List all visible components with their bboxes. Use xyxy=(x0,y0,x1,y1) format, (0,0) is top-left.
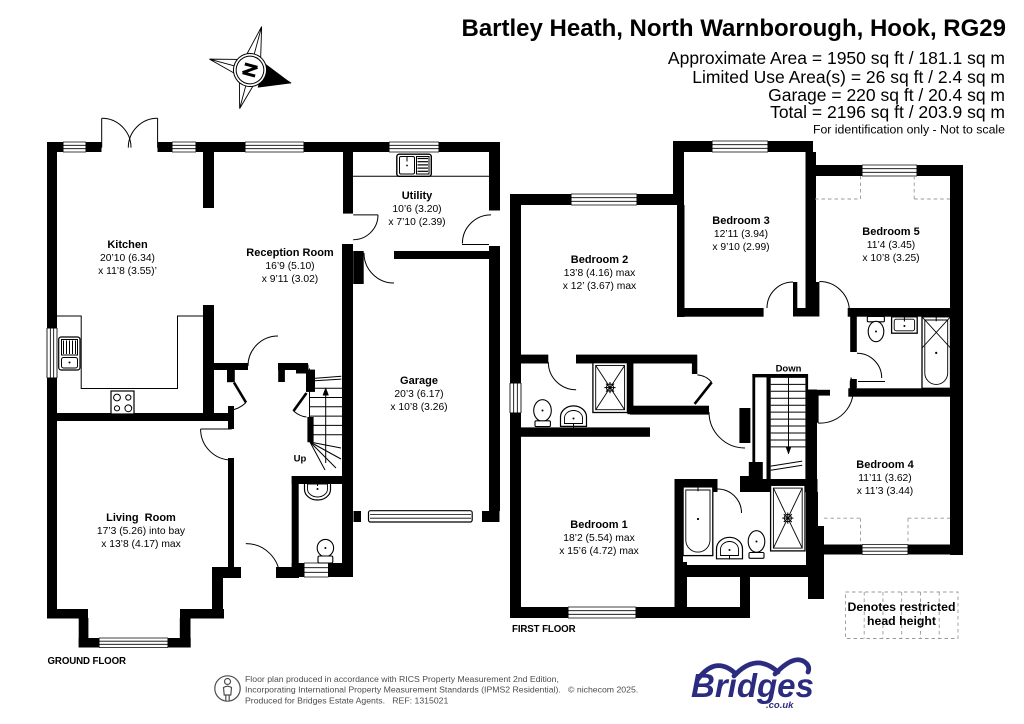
svg-text:x 11’3 (3.44): x 11’3 (3.44) xyxy=(857,486,913,497)
svg-text:Denotes restricted: Denotes restricted xyxy=(848,600,956,614)
svg-text:17’3 (5.26) into bay: 17’3 (5.26) into bay xyxy=(97,526,186,537)
svg-text:Kitchen: Kitchen xyxy=(107,239,148,251)
svg-text:Limited Use Area(s) = 26 sq ft: Limited Use Area(s) = 26 sq ft / 2.4 sq … xyxy=(692,67,1005,87)
svg-text:Reception Room: Reception Room xyxy=(246,247,334,259)
svg-text:Bedroom 5: Bedroom 5 xyxy=(862,226,919,238)
svg-text:Utility: Utility xyxy=(402,190,433,202)
svg-text:11’4 (3.45): 11’4 (3.45) xyxy=(867,240,915,251)
svg-text:.co.uk: .co.uk xyxy=(766,700,794,711)
svg-text:Produced for Bridges Estate Ag: Produced for Bridges Estate Agents. REF:… xyxy=(245,696,448,706)
svg-text:FIRST FLOOR: FIRST FLOOR xyxy=(512,624,576,635)
svg-text:x 7’10 (2.39): x 7’10 (2.39) xyxy=(388,217,445,228)
svg-text:18’2 (5.54) max: 18’2 (5.54) max xyxy=(563,533,635,544)
svg-text:x 10’8 (3.26): x 10’8 (3.26) xyxy=(390,402,447,413)
svg-text:Bedroom 1: Bedroom 1 xyxy=(570,519,627,531)
svg-text:Bedroom 2: Bedroom 2 xyxy=(571,254,628,266)
svg-text:13’8 (4.16) max: 13’8 (4.16) max xyxy=(564,268,636,279)
svg-text:16’9 (5.10): 16’9 (5.10) xyxy=(265,261,314,272)
svg-text:x 9’11 (3.02): x 9’11 (3.02) xyxy=(262,274,318,285)
svg-text:For identification only - Not: For identification only - Not to scale xyxy=(813,123,1005,137)
svg-text:Living Room: Living Room xyxy=(106,512,176,524)
svg-text:x 11’8 (3.55)’: x 11’8 (3.55)’ xyxy=(98,266,157,277)
svg-text:20’10 (6.34): 20’10 (6.34) xyxy=(100,253,155,264)
svg-text:12’11 (3.94): 12’11 (3.94) xyxy=(714,229,768,240)
svg-text:x 13’8 (4.17) max: x 13’8 (4.17) max xyxy=(101,539,181,550)
svg-text:Total = 2196 sq ft / 203.9 sq: Total = 2196 sq ft / 203.9 sq m xyxy=(770,102,1005,122)
svg-text:11’11 (3.62): 11’11 (3.62) xyxy=(858,473,911,484)
svg-text:x 10’8 (3.25): x 10’8 (3.25) xyxy=(862,253,919,264)
svg-text:x 12’ (3.67) max: x 12’ (3.67) max xyxy=(563,281,637,292)
svg-text:Bedroom 4: Bedroom 4 xyxy=(856,459,914,471)
svg-text:Bridges: Bridges xyxy=(691,667,814,704)
svg-text:Bartley Heath, North Warnborou: Bartley Heath, North Warnborough, Hook, … xyxy=(462,15,1007,42)
svg-text:Bedroom 3: Bedroom 3 xyxy=(712,215,769,227)
svg-text:Approximate Area = 1950 sq ft: Approximate Area = 1950 sq ft / 181.1 sq… xyxy=(668,48,1005,68)
svg-text:Incorporating International Pr: Incorporating International Property Mea… xyxy=(245,685,638,695)
svg-text:GROUND FLOOR: GROUND FLOOR xyxy=(48,656,127,667)
svg-text:20’3 (6.17): 20’3 (6.17) xyxy=(394,389,443,400)
svg-text:x 9’10 (2.99): x 9’10 (2.99) xyxy=(712,242,769,253)
svg-text:head height: head height xyxy=(867,614,936,628)
svg-text:Floor plan produced in accorda: Floor plan produced in accordance with R… xyxy=(245,674,559,684)
svg-text:Down: Down xyxy=(776,363,802,374)
svg-text:Garage: Garage xyxy=(400,375,438,387)
svg-text:10’6 (3.20): 10’6 (3.20) xyxy=(392,204,441,215)
svg-text:Up: Up xyxy=(294,454,307,465)
svg-text:x 15’6 (4.72) max: x 15’6 (4.72) max xyxy=(559,546,639,557)
